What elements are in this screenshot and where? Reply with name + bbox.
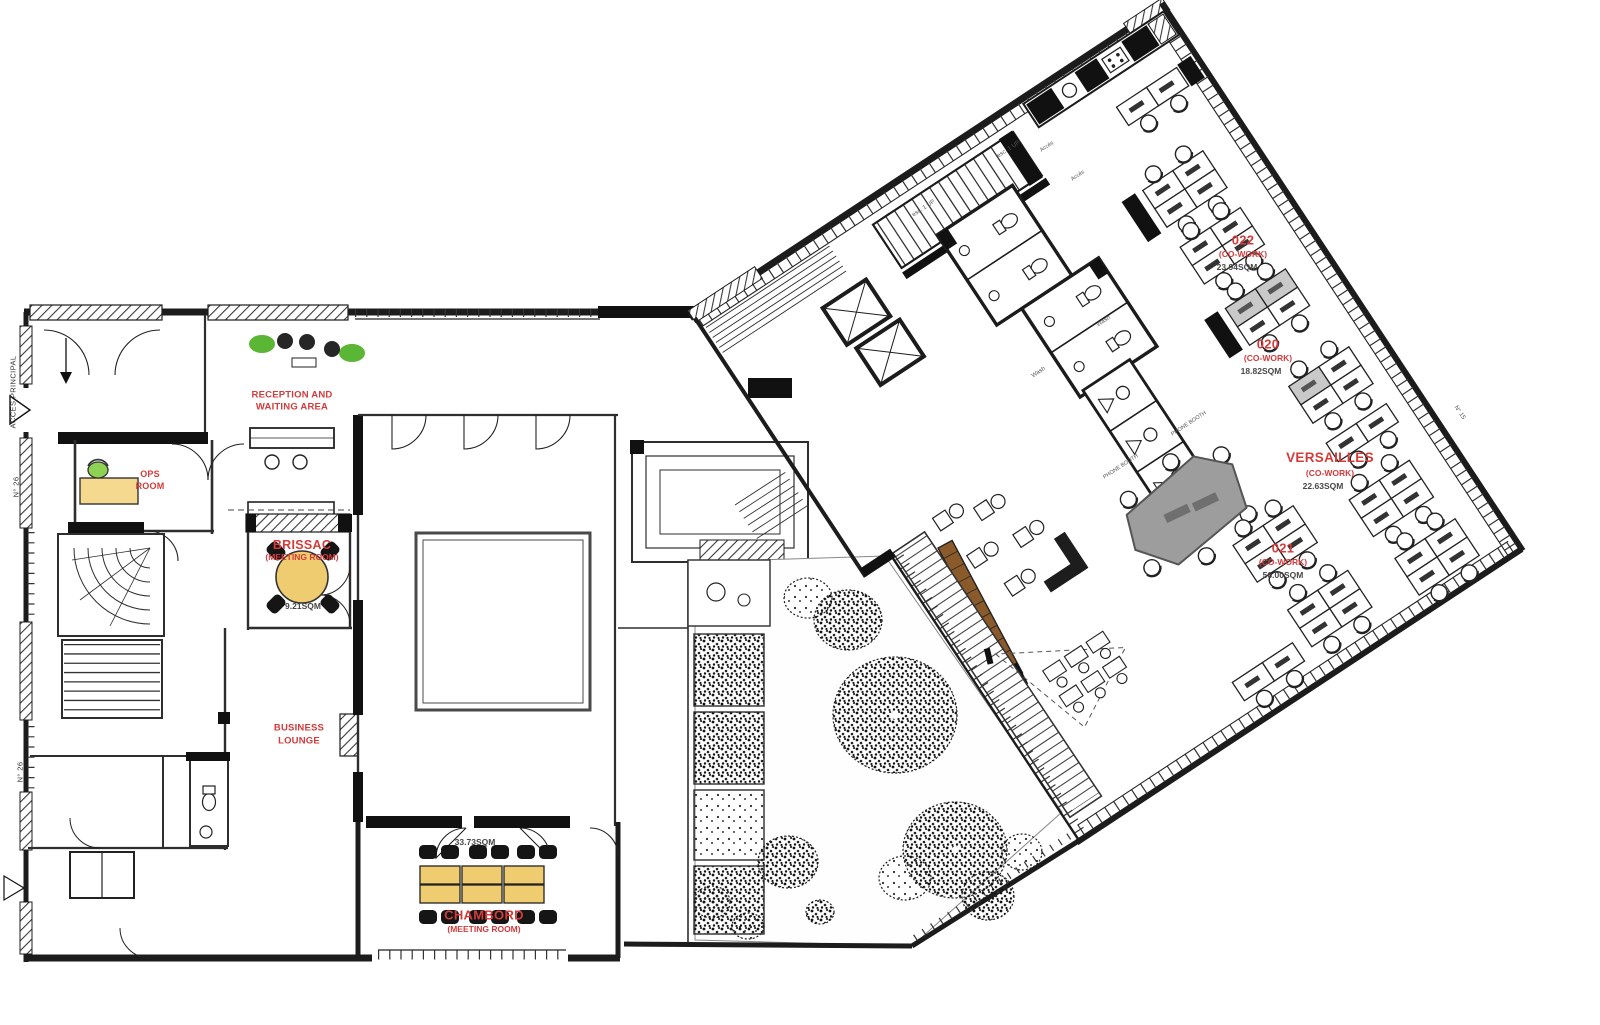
hatched-wall bbox=[30, 305, 162, 320]
label-022-type: (CO-WORK) bbox=[1219, 250, 1267, 260]
label-021-area: 56.00SQM bbox=[1263, 571, 1304, 581]
label-ops-1: OPS bbox=[140, 469, 160, 479]
label-versailles-area: 22.63SQM bbox=[1303, 482, 1344, 492]
label-street-no-26-a: N° 26 bbox=[13, 477, 22, 498]
label-022-name: 022 bbox=[1232, 234, 1255, 249]
label-acces-principal: ACCES PRINCIPAL bbox=[10, 356, 19, 429]
label-020-name: 020 bbox=[1257, 338, 1280, 353]
garden bbox=[624, 532, 1101, 946]
brissac-room bbox=[246, 514, 352, 630]
label-020-area: 18.82SQM bbox=[1241, 367, 1282, 377]
label-022-area: 23.94SQM bbox=[1217, 263, 1258, 273]
floor-plan-drawing bbox=[0, 0, 1600, 1025]
skylight-void bbox=[416, 533, 590, 710]
plant bbox=[249, 335, 275, 353]
elevators bbox=[823, 276, 924, 388]
label-brissac-type: (MEETING ROOM) bbox=[265, 553, 338, 563]
stair-flight bbox=[62, 640, 162, 718]
label-ops-2: ROOM bbox=[136, 481, 165, 491]
label-versailles-name: VERSAILLES bbox=[1286, 450, 1374, 466]
label-reception-2: WAITING AREA bbox=[256, 403, 328, 414]
central-room bbox=[353, 415, 618, 826]
label-chambord-type: (MEETING ROOM) bbox=[447, 925, 520, 935]
label-chambord-area: 33.73SQM bbox=[455, 838, 496, 848]
label-021-name: 021 bbox=[1272, 542, 1295, 557]
label-brissac-area: 9.21SQM bbox=[285, 602, 321, 612]
direction-arrow-icon bbox=[60, 372, 72, 384]
plant bbox=[339, 344, 365, 362]
ops-desk bbox=[80, 478, 138, 504]
kitchen bbox=[1023, 11, 1179, 127]
label-business-2: LOUNGE bbox=[278, 737, 320, 748]
label-street-no-26-b: N° 26 bbox=[17, 762, 26, 783]
label-021-type: (CO-WORK) bbox=[1259, 558, 1307, 568]
secondary-arrow-icon bbox=[4, 876, 24, 900]
label-versailles-type: (CO-WORK) bbox=[1306, 469, 1354, 479]
ops-chair bbox=[88, 462, 108, 478]
spiral-stair bbox=[58, 534, 164, 636]
ops-room bbox=[68, 440, 244, 561]
chambord-table bbox=[420, 866, 544, 903]
planter-column bbox=[688, 560, 770, 934]
left-wing bbox=[4, 305, 698, 964]
label-brissac-name: BRISSAC bbox=[273, 538, 331, 552]
floor-plan: RECEPTION AND WAITING AREA OPS ROOM BRIS… bbox=[0, 0, 1600, 1025]
label-business-1: BUSINESS bbox=[274, 724, 324, 735]
reception-area bbox=[228, 333, 365, 518]
bottom-left-rooms bbox=[28, 752, 230, 958]
label-chambord-name: CHAMBORD bbox=[444, 909, 524, 924]
label-020-type: (CO-WORK) bbox=[1244, 354, 1292, 364]
label-reception-1: RECEPTION AND bbox=[252, 391, 333, 402]
